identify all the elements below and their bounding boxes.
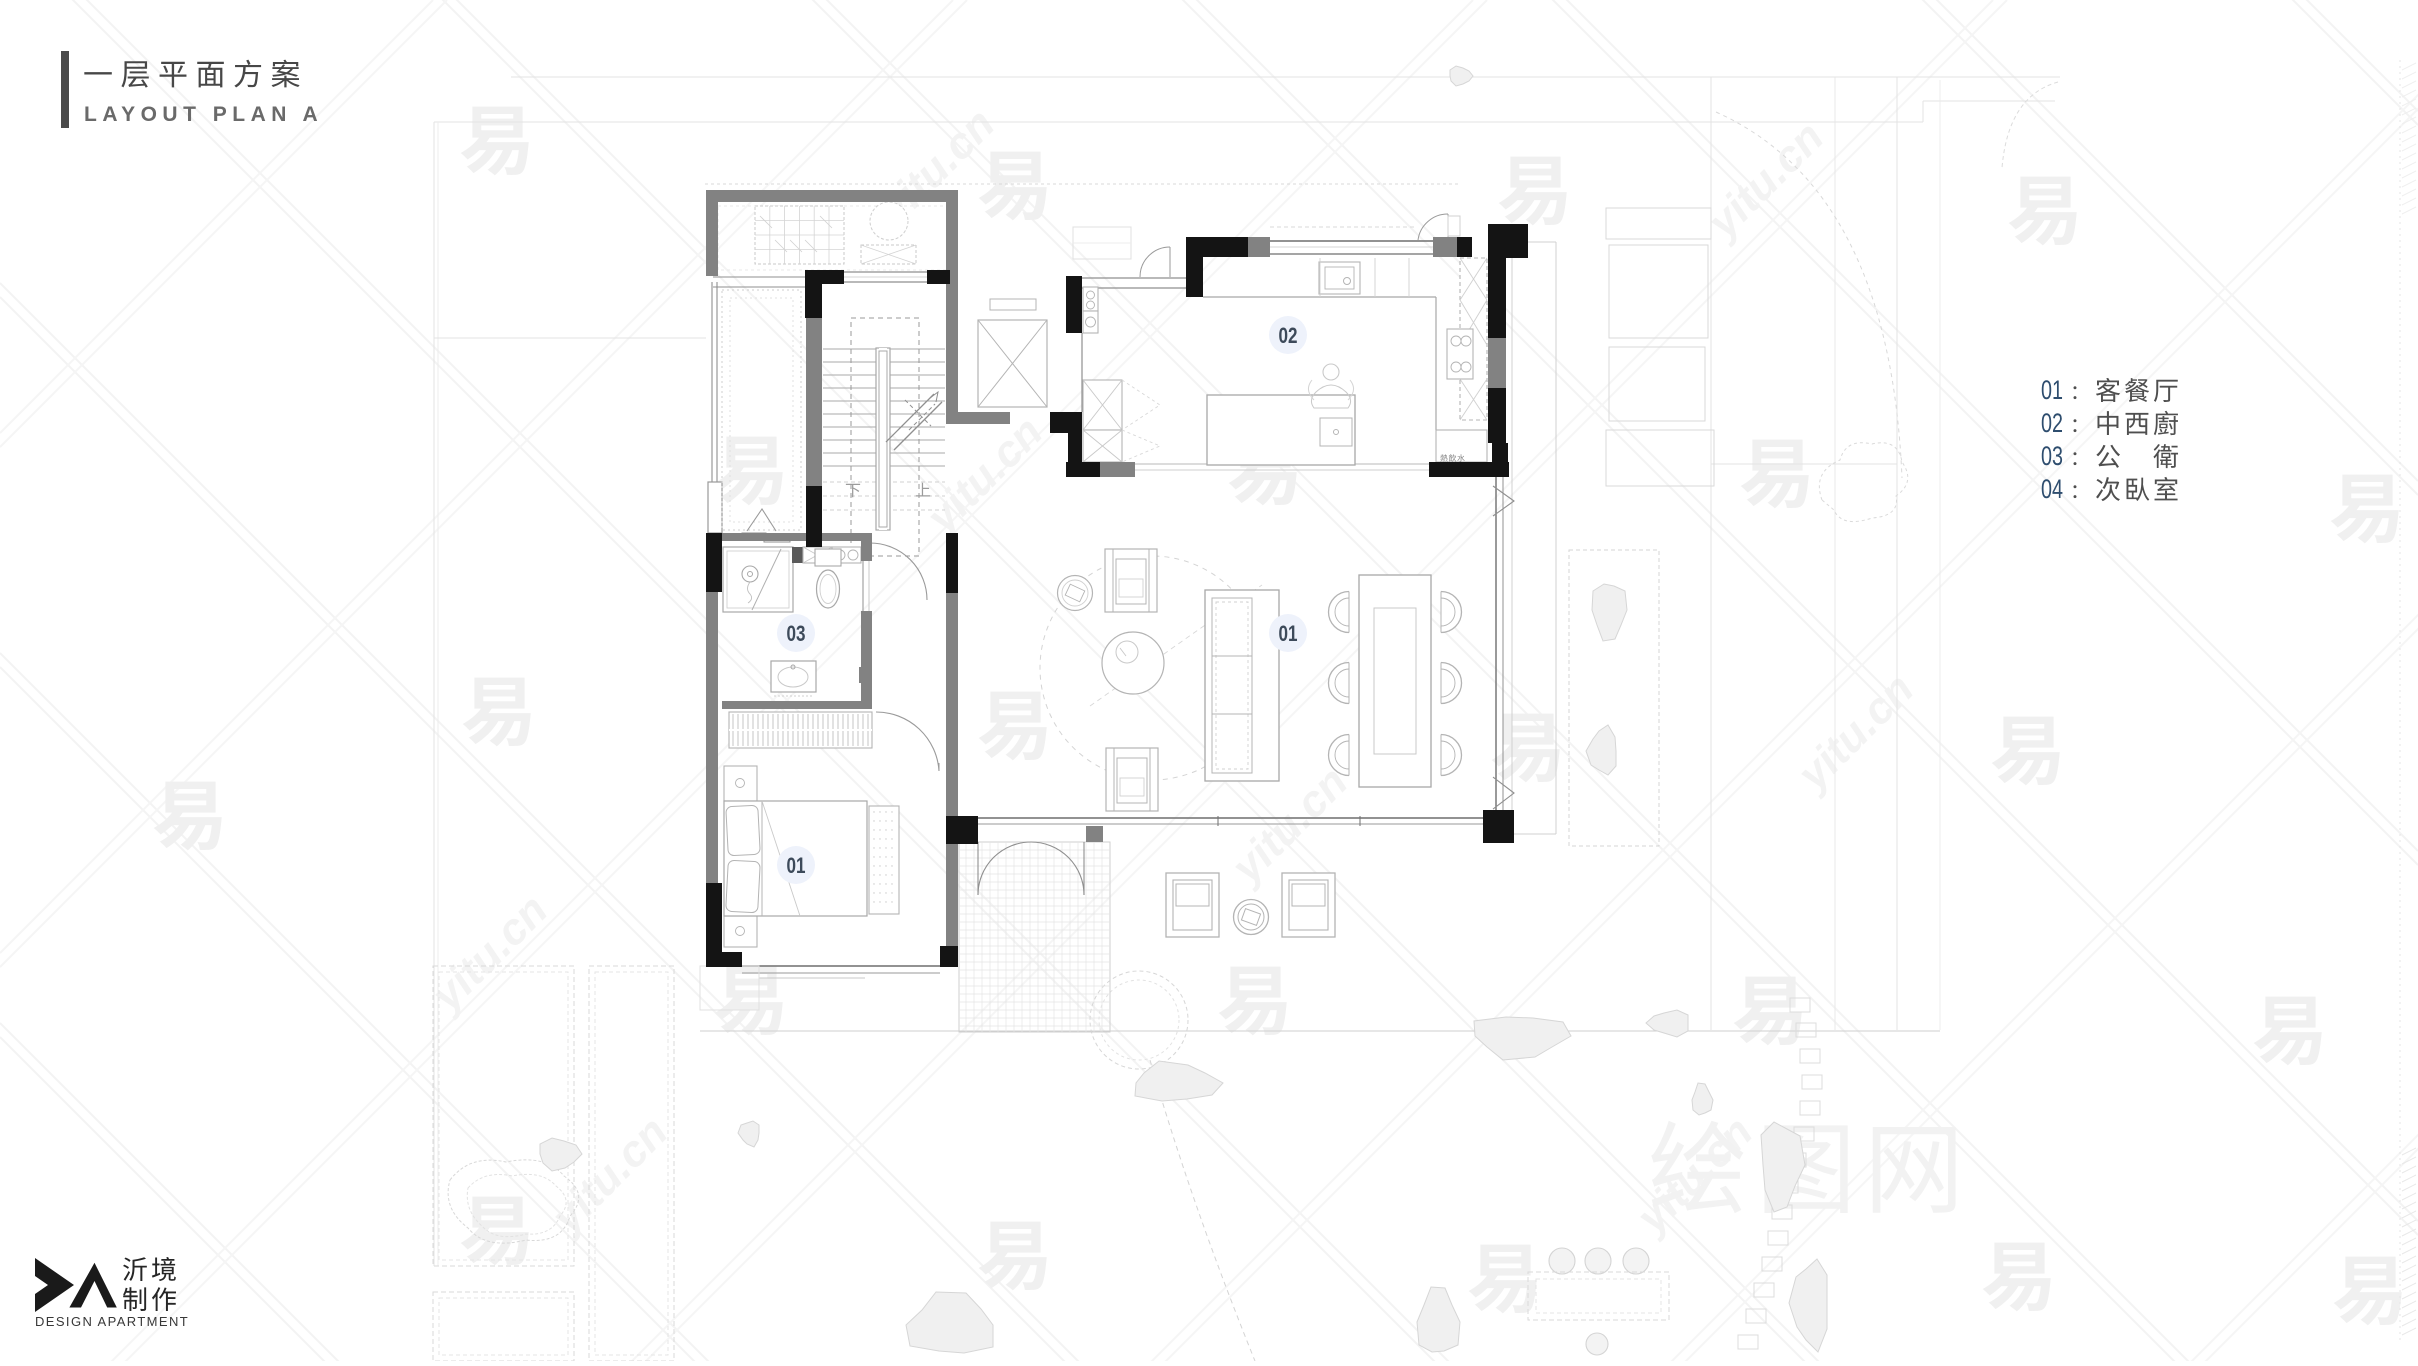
svg-text:LAYOUT PLAN A: LAYOUT PLAN A [84, 103, 323, 126]
svg-text:01: 01 [2041, 375, 2063, 405]
svg-text:03: 03 [2041, 441, 2063, 471]
svg-text:02: 02 [2041, 408, 2063, 438]
svg-text:03: 03 [787, 621, 806, 646]
svg-text:02: 02 [1279, 323, 1298, 348]
svg-text:04: 04 [2041, 474, 2063, 504]
svg-text:01: 01 [1279, 621, 1298, 646]
svg-text:DESIGN APARTMENT: DESIGN APARTMENT [35, 1314, 189, 1329]
svg-text:01: 01 [787, 853, 806, 878]
